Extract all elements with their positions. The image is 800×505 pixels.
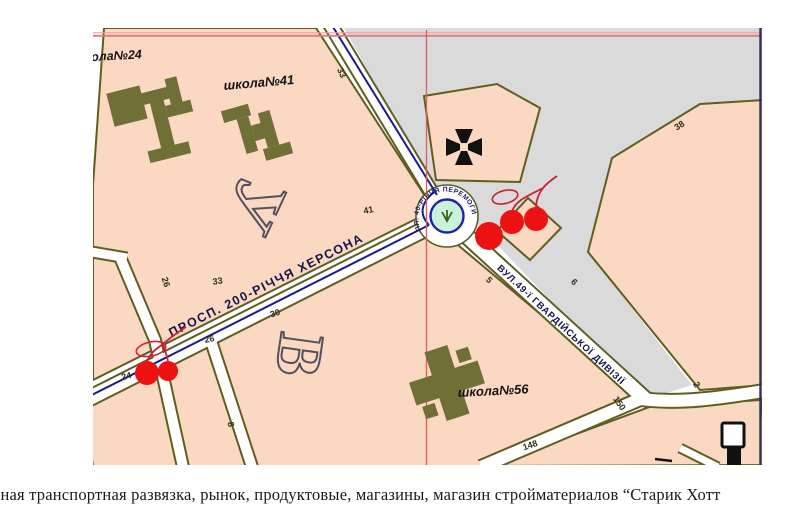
map-canvas: У В ПРОСП. 200-РІЧЧЯ ХЕРСОНА ВУЛ.49-ї ГВ…: [0, 0, 800, 499]
red-dot-marker: [475, 222, 503, 250]
block-church: [424, 84, 540, 182]
house-number: 33: [212, 275, 223, 286]
caption-text: чная транспортная развязка, рынок, проду…: [0, 485, 800, 505]
house-number: 41: [362, 204, 374, 216]
house-number: 26: [203, 333, 215, 345]
map-screenshot: У В ПРОСП. 200-РІЧЧЯ ХЕРСОНА ВУЛ.49-ї ГВ…: [0, 0, 800, 499]
